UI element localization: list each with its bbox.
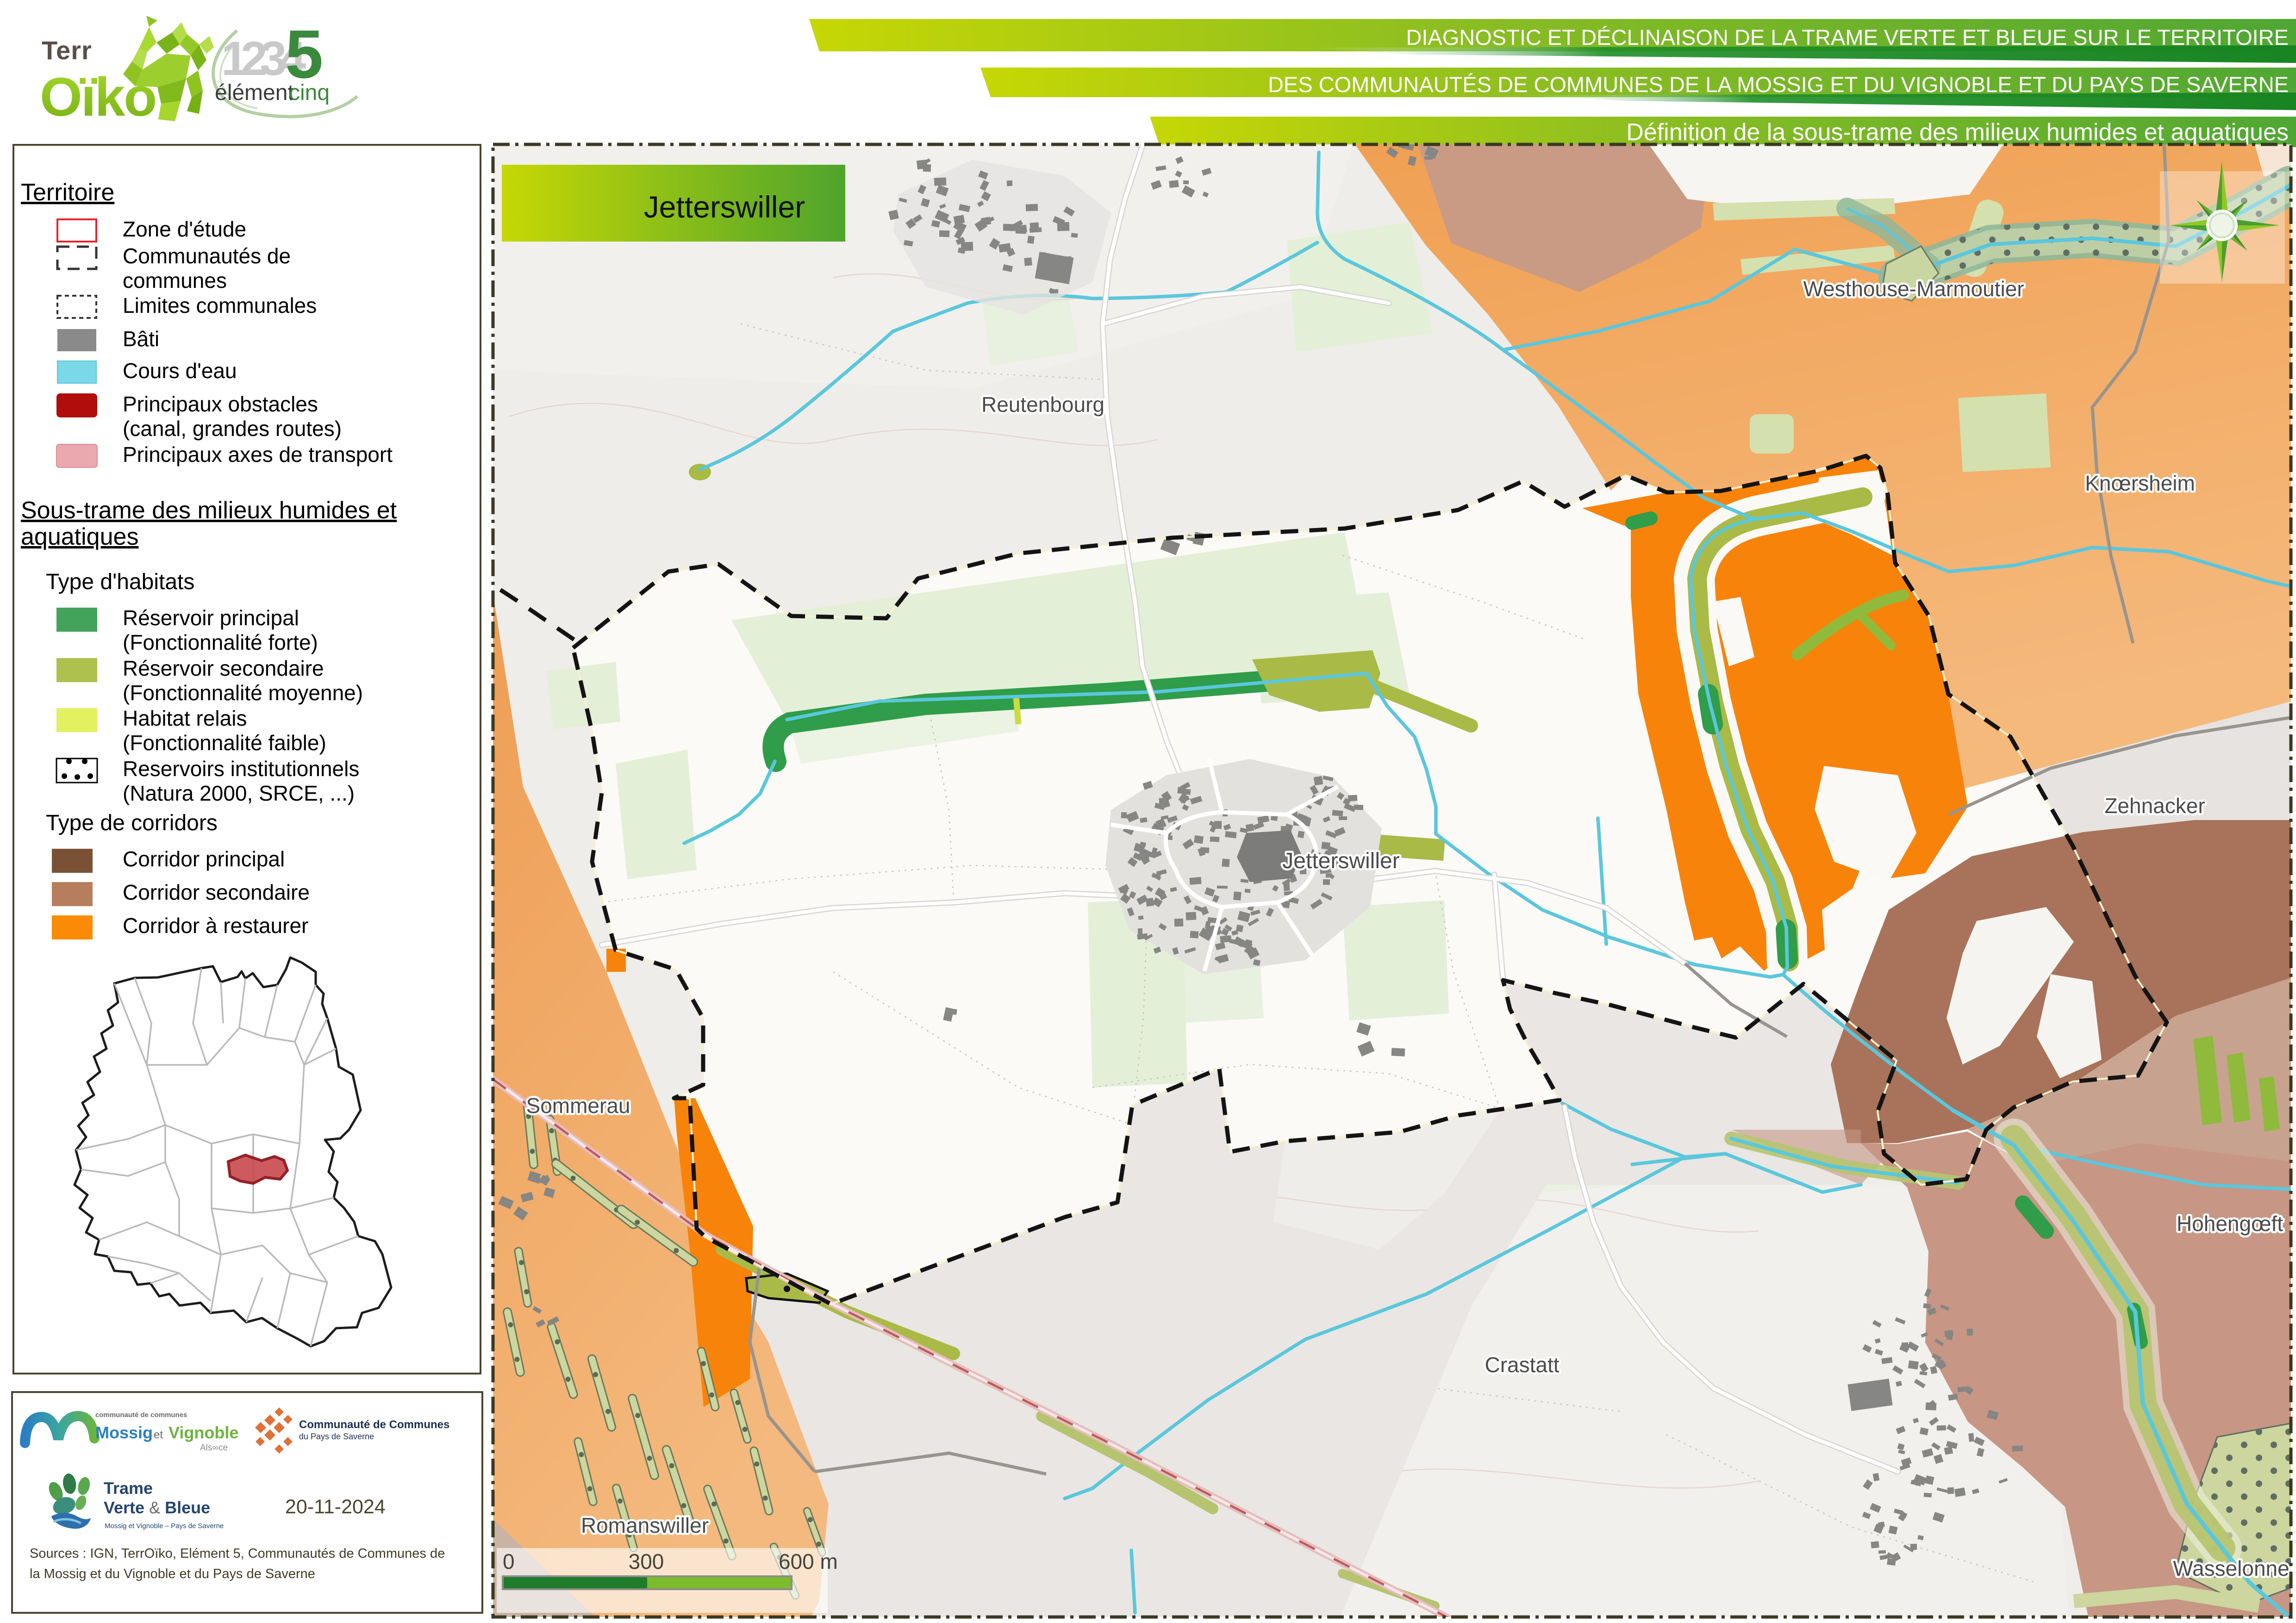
svg-text:du Pays de Saverne: du Pays de Saverne xyxy=(299,1432,374,1441)
svg-text:Cours d'eau: Cours d'eau xyxy=(123,359,237,383)
svg-text:Wasselonne: Wasselonne xyxy=(2173,1556,2289,1580)
svg-text:(Fonctionnalité moyenne): (Fonctionnalité moyenne) xyxy=(123,681,363,705)
svg-text:Bâti: Bâti xyxy=(123,327,159,351)
svg-text:Limites communales: Limites communales xyxy=(123,293,317,317)
svg-text:0: 0 xyxy=(503,1549,515,1573)
svg-text:Territoire: Territoire xyxy=(21,179,114,206)
svg-text:(canal, grandes routes): (canal, grandes routes) xyxy=(123,417,342,441)
svg-text:600 m: 600 m xyxy=(779,1549,838,1573)
svg-text:Sous-trame des milieux humides: Sous-trame des milieux humides et xyxy=(21,497,397,524)
svg-text:Zehnacker: Zehnacker xyxy=(2104,794,2205,818)
svg-text:Romanswiller: Romanswiller xyxy=(581,1513,709,1537)
svg-text:Habitat relais: Habitat relais xyxy=(123,706,247,730)
svg-text:communauté de communes: communauté de communes xyxy=(95,1411,187,1419)
svg-text:Zone d'étude: Zone d'étude xyxy=(123,217,246,241)
svg-text:Corridor à restaurer: Corridor à restaurer xyxy=(123,914,308,938)
svg-text:Réservoir secondaire: Réservoir secondaire xyxy=(123,656,324,680)
svg-text:(Natura 2000, SRCE, ...): (Natura 2000, SRCE, ...) xyxy=(123,781,355,805)
svg-text:Corridor principal: Corridor principal xyxy=(123,847,285,871)
svg-text:Crastatt: Crastatt xyxy=(1485,1353,1559,1377)
svg-text:Mossig et Vignoble – Pays de S: Mossig et Vignoble – Pays de Saverne xyxy=(105,1522,224,1530)
svg-text:Hohengœft: Hohengœft xyxy=(2177,1212,2283,1236)
svg-text:300: 300 xyxy=(629,1549,664,1573)
svg-text:(Fonctionnalité faible): (Fonctionnalité faible) xyxy=(123,731,326,755)
svg-text:Type d'habitats: Type d'habitats xyxy=(46,570,194,594)
svg-text:Communautés de: Communautés de xyxy=(123,244,291,268)
svg-text:Knœrsheim: Knœrsheim xyxy=(2085,471,2195,495)
svg-text:Réservoir principal: Réservoir principal xyxy=(123,606,299,630)
svg-text:20-11-2024: 20-11-2024 xyxy=(285,1496,386,1518)
svg-text:(Fonctionnalité forte): (Fonctionnalité forte) xyxy=(123,630,318,654)
svg-text:Communauté de Communes: Communauté de Communes xyxy=(299,1418,449,1431)
svg-text:et: et xyxy=(154,1429,163,1441)
svg-text:aquatiques: aquatiques xyxy=(21,523,138,550)
svg-text:Vignoble: Vignoble xyxy=(168,1423,238,1442)
svg-text:Jetterswiller: Jetterswiller xyxy=(1282,849,1399,873)
svg-text:Sommerau: Sommerau xyxy=(526,1094,630,1118)
svg-text:Jetterswiller: Jetterswiller xyxy=(644,190,805,224)
svg-text:la Mossig et du Vignoble et du: la Mossig et du Vignoble et du Pays de S… xyxy=(30,1567,315,1581)
svg-text:Sources : IGN, TerrOïko, Eléme: Sources : IGN, TerrOïko, Elément 5, Comm… xyxy=(30,1546,445,1561)
svg-text:Reutenbourg: Reutenbourg xyxy=(981,392,1104,417)
svg-text:Verte & Bleue: Verte & Bleue xyxy=(104,1498,210,1517)
svg-text:Trame: Trame xyxy=(104,1479,153,1498)
svg-text:Mossig: Mossig xyxy=(95,1423,153,1442)
svg-text:Principaux axes de transport: Principaux axes de transport xyxy=(123,442,393,466)
svg-text:Type de corridors: Type de corridors xyxy=(46,811,218,835)
svg-text:Westhouse-Marmoutier: Westhouse-Marmoutier xyxy=(1803,277,2024,301)
svg-text:Principaux obstacles: Principaux obstacles xyxy=(123,392,318,416)
svg-text:Als∞ce: Als∞ce xyxy=(200,1443,228,1453)
svg-text:Corridor secondaire: Corridor secondaire xyxy=(123,880,310,904)
svg-text:Reservoirs institutionnels: Reservoirs institutionnels xyxy=(123,757,359,781)
svg-text:communes: communes xyxy=(123,268,227,292)
